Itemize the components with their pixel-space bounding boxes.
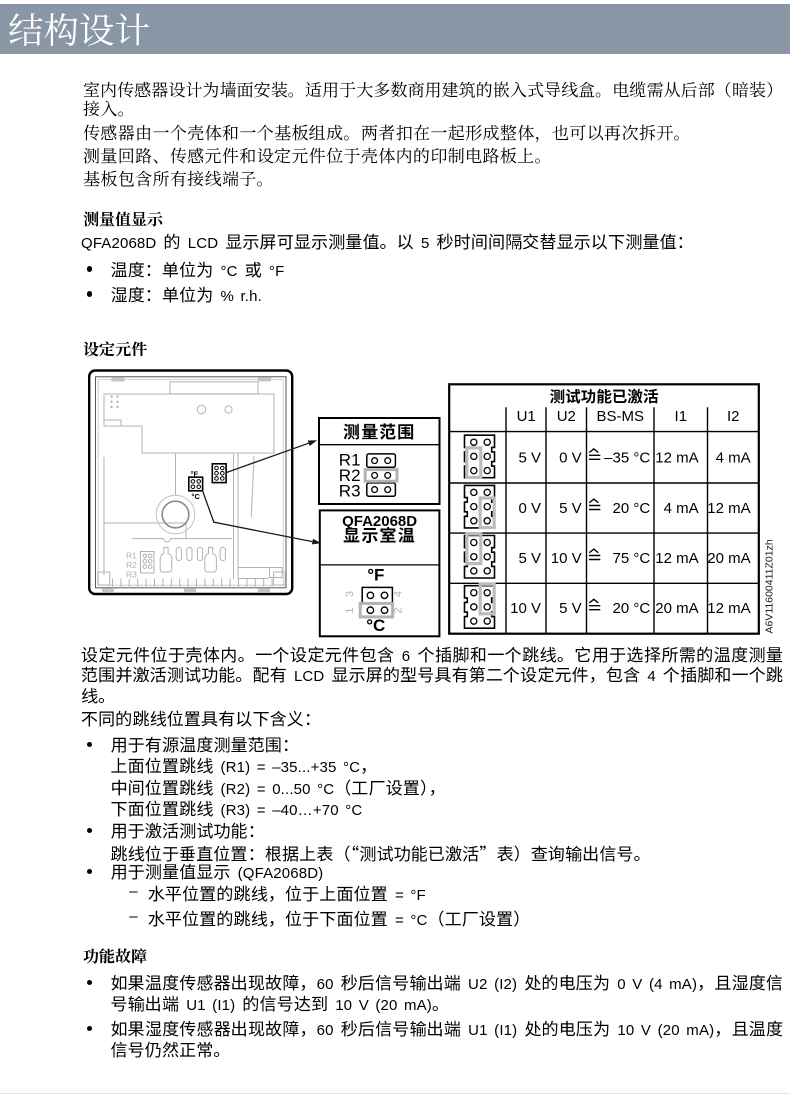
svg-text:20 mA: 20 mA — [707, 550, 750, 567]
svg-text:°F: °F — [367, 566, 384, 585]
svg-text:R3: R3 — [339, 481, 361, 500]
svg-text:12 mA: 12 mA — [655, 450, 698, 467]
svg-text:0 V: 0 V — [559, 450, 582, 467]
svg-text:10 V: 10 V — [551, 550, 582, 567]
svg-text:2: 2 — [393, 607, 405, 613]
svg-text:4: 4 — [393, 591, 405, 597]
svg-text:20 °C: 20 °C — [613, 600, 651, 617]
svg-text:12 mA: 12 mA — [655, 550, 698, 567]
svg-text:显示室温: 显示室温 — [343, 526, 416, 546]
svg-text:3: 3 — [344, 591, 356, 597]
svg-text:12 mA: 12 mA — [707, 600, 750, 617]
svg-text:5 V: 5 V — [518, 450, 541, 467]
svg-text:0 V: 0 V — [518, 500, 541, 517]
svg-text:12 mA: 12 mA — [707, 500, 750, 517]
svg-text:测试功能已激活: 测试功能已激活 — [550, 388, 659, 406]
svg-text:4 mA: 4 mA — [664, 500, 699, 517]
svg-text:R1: R1 — [126, 551, 137, 561]
svg-text:75 °C: 75 °C — [613, 550, 651, 567]
svg-text:A6V11600411Z01zh: A6V11600411Z01zh — [764, 539, 776, 633]
svg-text:I1: I1 — [675, 408, 688, 425]
svg-text:°F: °F — [191, 470, 199, 479]
svg-text:R3: R3 — [126, 570, 137, 580]
svg-text:BS-MS: BS-MS — [597, 408, 645, 425]
svg-text:5 V: 5 V — [518, 550, 541, 567]
svg-text:°C: °C — [192, 492, 201, 501]
svg-text:U2: U2 — [557, 408, 576, 425]
svg-text:5 V: 5 V — [559, 600, 582, 617]
svg-text:U1: U1 — [517, 408, 536, 425]
svg-text:5 V: 5 V — [559, 500, 582, 517]
svg-text:20 mA: 20 mA — [655, 600, 698, 617]
svg-text:20 °C: 20 °C — [613, 500, 651, 517]
svg-text:1: 1 — [344, 607, 356, 613]
svg-text:4 mA: 4 mA — [716, 450, 751, 467]
svg-text:–35 °C: –35 °C — [604, 450, 650, 467]
svg-text:°C: °C — [366, 616, 385, 635]
svg-text:测量范围: 测量范围 — [343, 423, 415, 442]
svg-text:I2: I2 — [727, 408, 740, 425]
svg-text:10 V: 10 V — [510, 600, 541, 617]
svg-text:R2: R2 — [126, 560, 137, 570]
